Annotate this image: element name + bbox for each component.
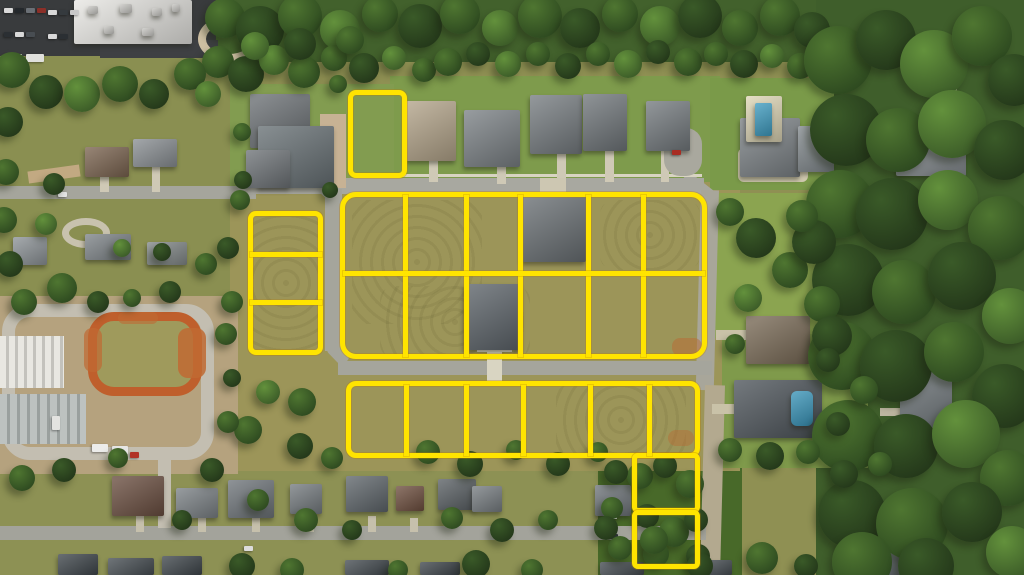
tree-canopy	[441, 507, 463, 529]
tree-canopy	[43, 173, 65, 195]
tree-canopy	[336, 26, 364, 54]
house	[746, 316, 810, 364]
parked-car	[26, 8, 35, 13]
house	[420, 562, 460, 575]
tree-canopy	[722, 10, 758, 46]
tree-canopy	[796, 440, 820, 464]
tree-canopy	[674, 48, 702, 76]
parked-car	[48, 34, 57, 39]
mansion-roof	[246, 150, 290, 188]
tree-canopy	[230, 190, 250, 210]
tree-canopy	[521, 559, 543, 575]
lot-outline-southeast-lower[interactable]	[632, 510, 700, 569]
tree-canopy	[294, 508, 318, 532]
lot-divider	[250, 300, 322, 305]
rooftop-unit	[172, 4, 180, 12]
house	[112, 476, 164, 516]
lot-divider	[404, 385, 409, 456]
tree-canopy	[123, 289, 141, 307]
tree-canopy	[730, 50, 758, 78]
tree-canopy	[388, 560, 408, 575]
parked-car	[15, 8, 24, 13]
lot-divider	[586, 195, 591, 357]
tree-canopy	[718, 438, 742, 462]
tree-canopy	[868, 452, 892, 476]
lot-outline-southeast-upper[interactable]	[632, 453, 700, 513]
tree-canopy	[215, 323, 237, 345]
house	[108, 558, 154, 575]
tree-canopy	[153, 243, 171, 261]
house	[406, 101, 456, 161]
tree-canopy	[102, 66, 138, 102]
tree-canopy	[586, 42, 610, 66]
lot-outline-west-column[interactable]	[248, 211, 323, 355]
lot-divider	[641, 195, 646, 357]
lot-divider	[464, 385, 469, 456]
house	[583, 94, 627, 151]
house	[472, 486, 502, 512]
tree-canopy	[604, 460, 628, 484]
sidewalk-top	[398, 174, 702, 177]
tree-canopy	[11, 289, 37, 315]
driveway	[410, 518, 418, 532]
house	[396, 486, 424, 511]
tree-canopy	[113, 239, 131, 257]
parked-car	[59, 34, 68, 39]
truck	[26, 54, 44, 62]
tree-canopy	[495, 51, 521, 77]
driveway	[198, 518, 206, 532]
tree-canopy	[64, 76, 100, 112]
tree-canopy	[725, 334, 745, 354]
warehouse	[0, 336, 64, 388]
tree-canopy	[434, 48, 462, 76]
driveway	[136, 516, 144, 532]
lot-divider	[588, 385, 593, 456]
tree-canopy	[172, 510, 192, 530]
house	[85, 147, 129, 177]
truck	[52, 416, 60, 430]
tree-canopy	[816, 348, 840, 372]
rooftop-unit	[142, 28, 154, 36]
tree-canopy	[830, 460, 858, 488]
tree-canopy	[288, 388, 316, 416]
lot-outline-north-single[interactable]	[348, 90, 407, 178]
driveway	[152, 167, 160, 192]
tree-canopy	[826, 412, 850, 436]
tree-canopy	[241, 32, 269, 60]
tree-canopy	[200, 458, 224, 482]
house	[162, 556, 202, 575]
house	[133, 139, 177, 167]
tree-canopy	[29, 75, 63, 109]
parked-car	[70, 10, 79, 15]
tree-canopy	[322, 182, 338, 198]
tree-canopy	[856, 178, 928, 250]
tree-canopy	[716, 198, 744, 226]
tree-canopy	[221, 291, 243, 313]
rooftop-unit	[152, 8, 162, 16]
warehouse	[0, 394, 86, 444]
house	[646, 101, 690, 151]
tree-canopy	[704, 42, 728, 66]
parked-car	[15, 32, 24, 37]
tree-canopy	[87, 291, 109, 313]
tree-canopy	[284, 28, 316, 60]
tree-canopy	[9, 465, 35, 491]
parked-car	[48, 10, 57, 15]
parked-car	[4, 8, 13, 13]
tree-canopy	[47, 273, 77, 303]
tree-canopy	[872, 260, 936, 324]
house	[58, 554, 98, 575]
tree-canopy	[736, 218, 776, 258]
tree-canopy	[195, 81, 221, 107]
tree-canopy	[594, 516, 618, 540]
tree-canopy	[256, 380, 280, 404]
red-equipment	[130, 452, 139, 458]
swimming-pool	[791, 391, 813, 426]
tree-canopy	[756, 442, 784, 470]
driveway	[100, 177, 109, 192]
lot-divider	[518, 195, 523, 357]
rooftop-unit	[88, 6, 98, 14]
tree-canopy	[217, 411, 239, 433]
lot-divider	[250, 252, 322, 257]
tree-canopy	[233, 123, 251, 141]
tree-canopy	[223, 369, 241, 387]
dirt-patch	[178, 328, 206, 378]
dirt-patch	[84, 328, 102, 372]
house	[345, 560, 389, 575]
tree-canopy	[924, 322, 984, 382]
parked-car	[59, 10, 68, 15]
parked-car	[37, 8, 46, 13]
lot-divider	[464, 195, 469, 357]
tree-canopy	[349, 53, 379, 83]
tree-canopy	[555, 53, 581, 79]
house	[438, 479, 476, 510]
red-car	[672, 150, 681, 155]
tree-canopy	[280, 558, 304, 575]
tree-canopy	[482, 10, 518, 46]
tree-canopy	[321, 447, 343, 469]
tree-canopy	[329, 75, 347, 93]
trailer	[92, 444, 108, 452]
tree-canopy	[382, 46, 406, 70]
tree-canopy	[794, 554, 818, 575]
tree-canopy	[342, 520, 362, 540]
tree-canopy	[734, 284, 762, 312]
house	[464, 110, 520, 167]
rooftop-unit	[104, 26, 114, 34]
tree-canopy	[398, 4, 442, 48]
tree-canopy	[247, 489, 269, 511]
tree-canopy	[139, 79, 169, 109]
road-block-south	[338, 361, 712, 375]
tree-canopy	[195, 253, 217, 275]
tree-canopy	[746, 542, 778, 574]
dirt-patch	[118, 312, 158, 324]
car	[244, 546, 253, 551]
tree-canopy	[490, 518, 514, 542]
tree-canopy	[614, 50, 642, 78]
tree-canopy	[229, 553, 255, 575]
tree-canopy	[412, 58, 436, 82]
tree-canopy	[462, 550, 490, 575]
tree-canopy	[538, 510, 558, 530]
lot-divider	[343, 271, 705, 276]
road-top-west	[0, 186, 256, 199]
tree-canopy	[526, 42, 550, 66]
parked-car	[26, 32, 35, 37]
swimming-pool	[755, 103, 772, 136]
tree-canopy	[159, 281, 181, 303]
lot-divider	[521, 385, 526, 456]
tree-canopy	[608, 536, 632, 560]
house	[530, 95, 582, 154]
tree-canopy	[646, 40, 670, 64]
tree-canopy	[234, 171, 252, 189]
tree-canopy	[466, 42, 490, 66]
lot-divider	[647, 385, 652, 456]
tree-canopy	[287, 433, 313, 459]
house	[346, 476, 388, 512]
parked-car	[4, 32, 13, 37]
tree-canopy	[35, 213, 57, 235]
tree-canopy	[786, 200, 818, 232]
driveway	[368, 516, 376, 532]
tree-canopy	[108, 448, 128, 468]
tree-canopy	[217, 237, 239, 259]
aerial-photo	[0, 0, 1024, 575]
tree-canopy	[52, 458, 76, 482]
lot-divider	[403, 195, 408, 357]
rooftop-unit	[120, 4, 132, 13]
tree-canopy	[760, 44, 784, 68]
tree-canopy	[850, 376, 878, 404]
tree-canopy	[288, 56, 320, 88]
driveway	[252, 518, 260, 532]
